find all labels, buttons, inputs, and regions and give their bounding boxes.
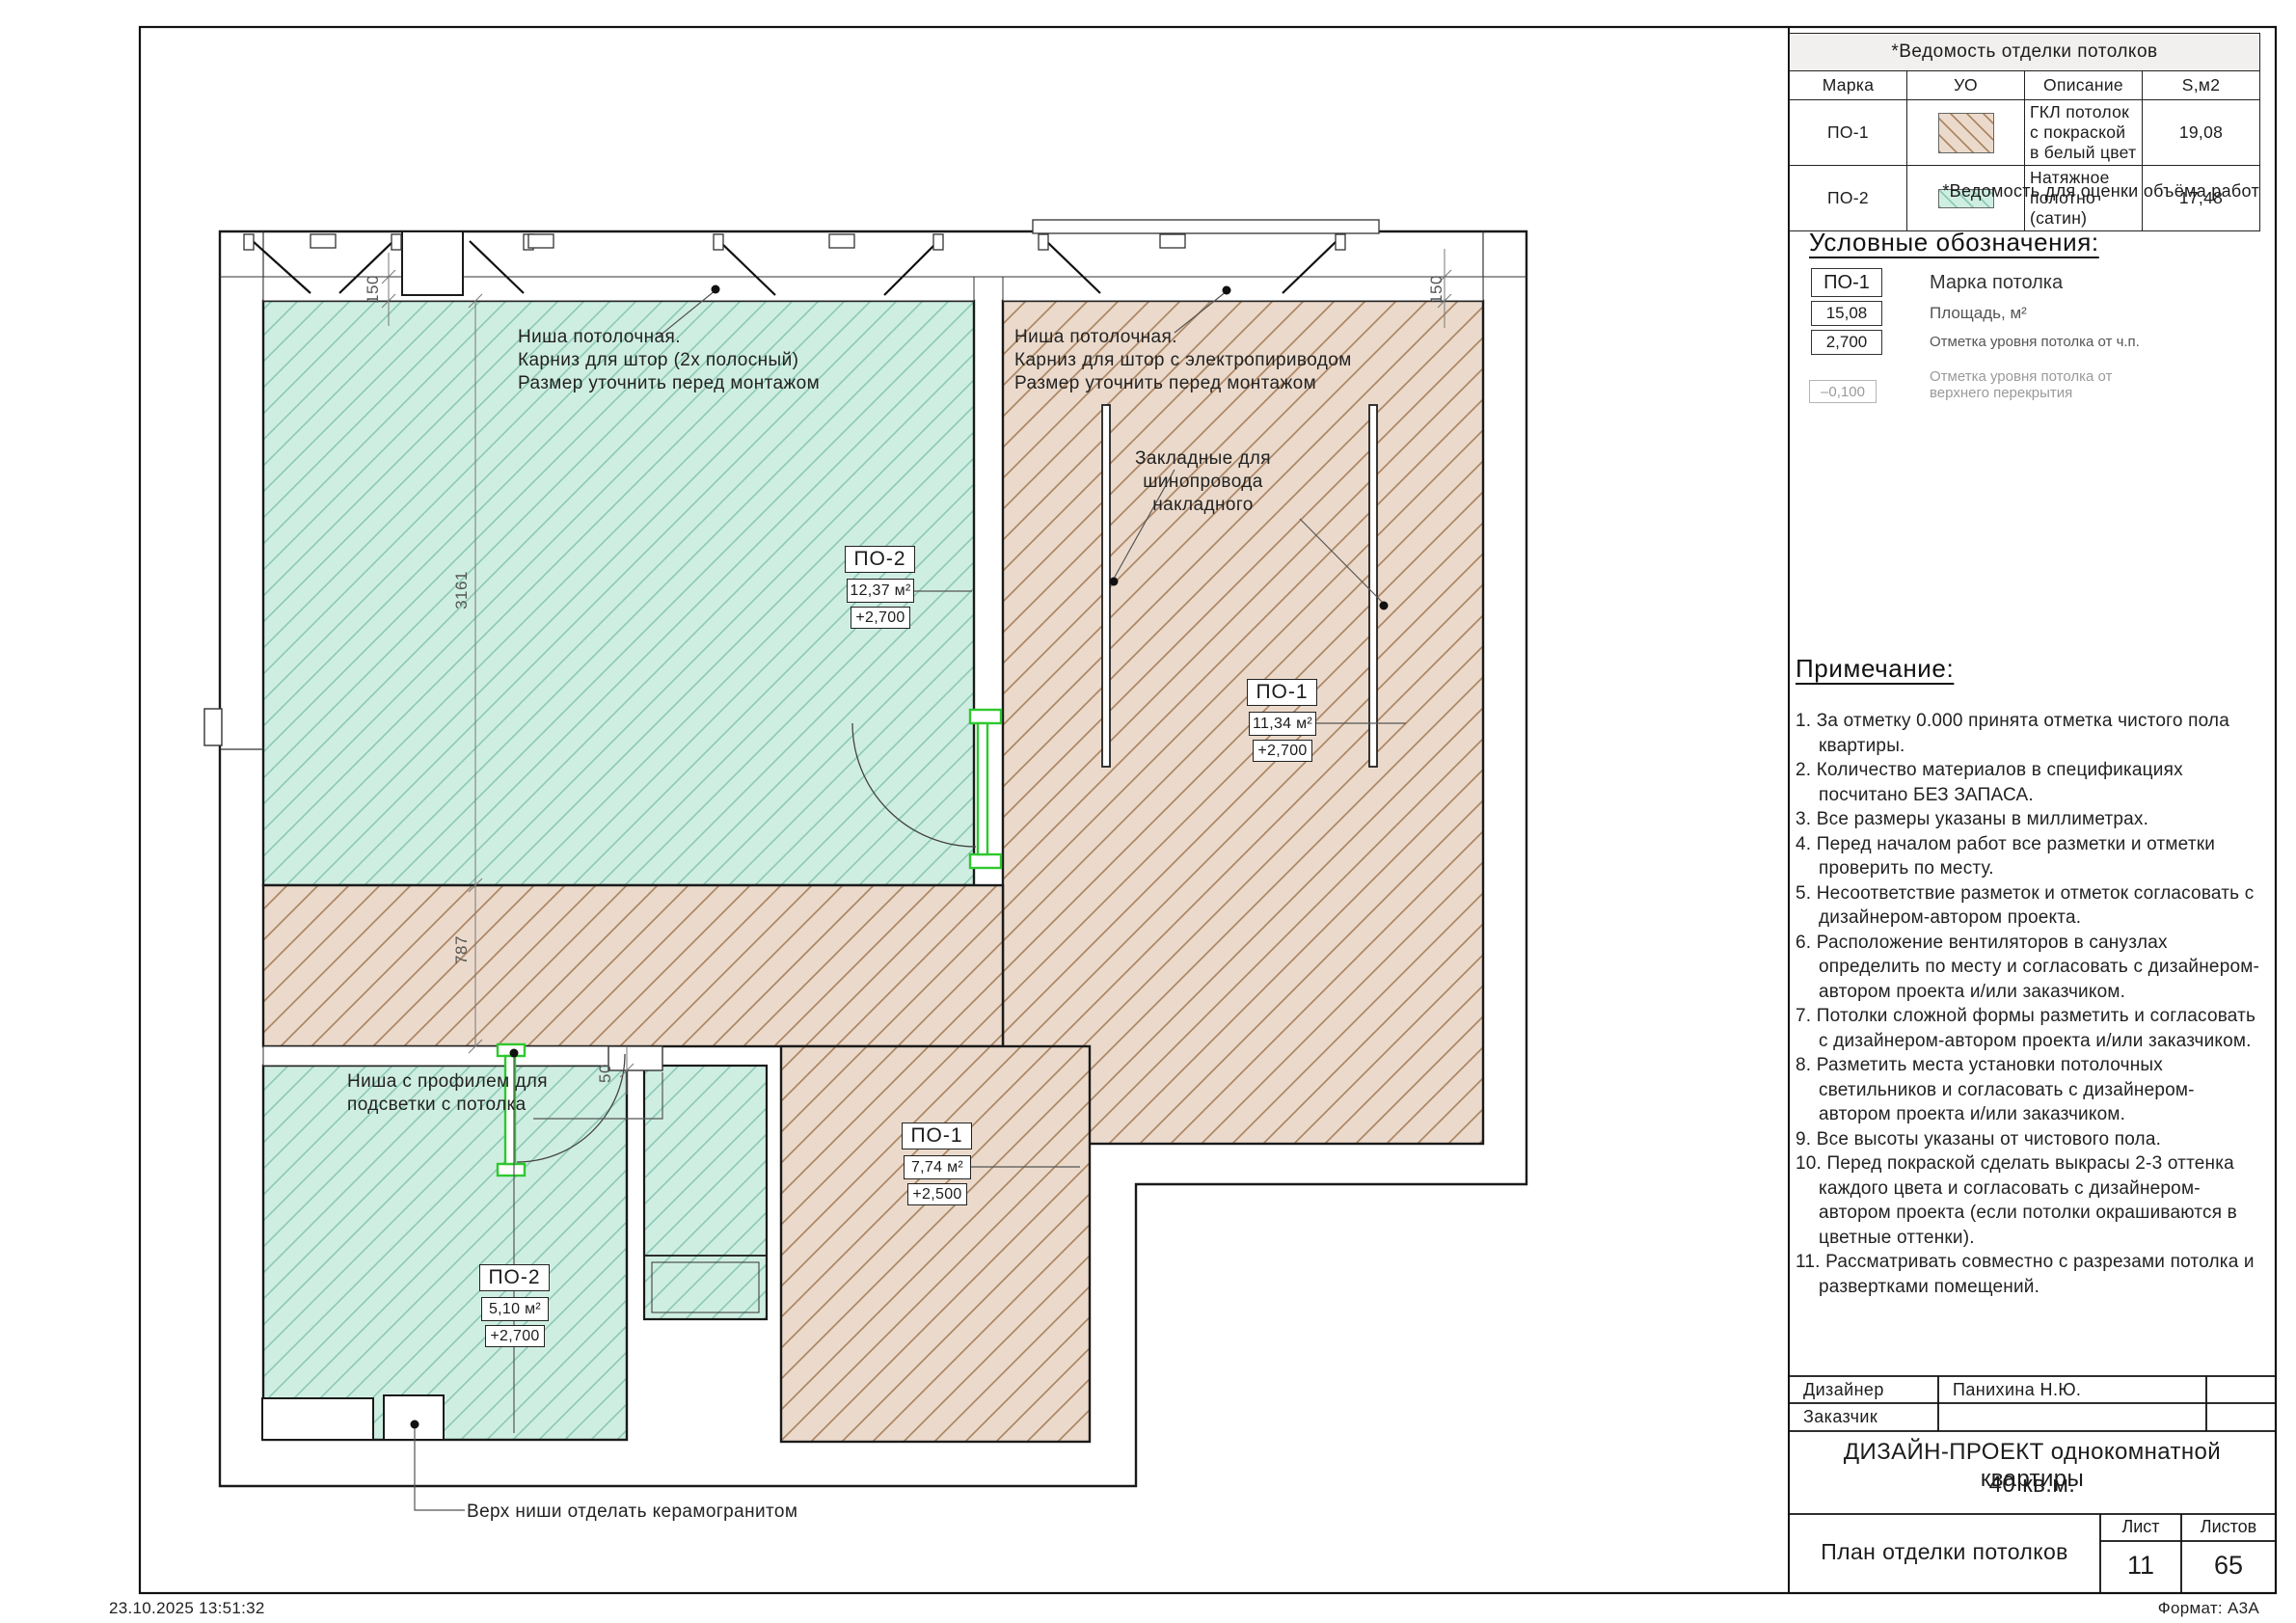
- label-level-po1-main: +2,700: [1253, 740, 1312, 762]
- label-area-po2-small: 5,10 м²: [481, 1297, 549, 1321]
- finish-schedule-table: *Ведомость отделки потолков Марка УО Опи…: [1789, 33, 2260, 231]
- note-item: Количество материалов в спецификациях по…: [1796, 758, 2260, 807]
- col-header-mark: Марка: [1790, 71, 1907, 100]
- format-label: Формат: А3А: [1982, 1599, 2259, 1618]
- label-mark-po2-small: ПО-2: [479, 1264, 550, 1291]
- cell-mark: ПО-1: [1790, 100, 1907, 166]
- annotation-line: Размер уточнить перед монтажом: [1014, 372, 1352, 395]
- legend-label-line: верхнего перекрытия: [1930, 385, 2112, 401]
- note-item: Перед покраской сделать выкрасы 2-3 отте…: [1796, 1151, 2260, 1250]
- cell-area: 19,08: [2143, 100, 2260, 166]
- annotation-line: Закладные для: [1109, 447, 1297, 471]
- dim-light-niche: 50: [596, 1044, 615, 1102]
- annotation-line: Ниша потолочная.: [518, 326, 820, 349]
- note-item: Рассматривать совместно с разрезами пото…: [1796, 1250, 2260, 1299]
- note-item: Разметить места установки потолочных све…: [1796, 1053, 2260, 1127]
- legend-symbol-mark: ПО-1: [1811, 268, 1882, 297]
- label-mark-po1-corridor: ПО-1: [902, 1123, 972, 1150]
- label-area-po2-main: 12,37 м²: [847, 579, 914, 603]
- annotation-ceramic: Верх ниши отделать керамогранитом: [467, 1501, 797, 1524]
- dim-niche-top: 150: [364, 260, 383, 318]
- label-mark-po1-main: ПО-1: [1247, 679, 1317, 706]
- ceiling-niche-right: [1003, 277, 1483, 301]
- label-level-po1-corridor: +2,500: [907, 1183, 967, 1205]
- label-level-po2-small: +2,700: [485, 1325, 545, 1347]
- cell-desc: ГКЛ потолок с покраской в белый цвет: [2025, 100, 2143, 166]
- table-footnote: *Ведомость для оценки объёма работ: [1789, 181, 2259, 202]
- table-title: *Ведомость отделки потолков: [1790, 34, 2260, 71]
- timestamp: 23.10.2025 13:51:32: [109, 1599, 265, 1618]
- annotation-line: Размер уточнить перед монтажом: [518, 372, 820, 395]
- dim-room-height: 3161: [452, 561, 472, 619]
- swatch-gkl-brown: [1938, 113, 1994, 153]
- client-label: Заказчик: [1803, 1407, 1877, 1427]
- legend-label-slab: Отметка уровня потолка от верхнего перек…: [1930, 368, 2112, 401]
- annotation-line: Ниша с профилем для: [347, 1070, 548, 1094]
- sheet-label: Лист: [2100, 1517, 2181, 1537]
- left-wall-pier: [204, 709, 222, 745]
- annotation-line: Карниз для штор с электропириводом: [1014, 349, 1352, 372]
- designer-value: Панихина Н.Ю.: [1953, 1380, 2081, 1400]
- light-niche-strip: [263, 1046, 627, 1066]
- annotation-line: шинопровода: [1109, 471, 1297, 494]
- legend-label-level: Отметка уровня потолка от ч.п.: [1930, 334, 2140, 350]
- note-item: За отметку 0.000 принята отметка чистого…: [1796, 709, 2260, 758]
- corridor-gkl-band: [263, 885, 1003, 1046]
- col-header-desc: Описание: [2025, 71, 2143, 100]
- sheet-number: 11: [2100, 1551, 2181, 1581]
- busbar-embed-right: [1369, 405, 1377, 767]
- col-header-area: S,м2: [2143, 71, 2260, 100]
- legend-title: Условные обозначения:: [1809, 228, 2099, 257]
- note-item: Несоответствие разметок и отметок соглас…: [1796, 881, 2260, 931]
- dim-corridor: 787: [452, 921, 472, 979]
- note-item: Все размеры указаны в миллиметрах.: [1796, 807, 2260, 832]
- note-item: Потолки сложной формы разметить и соглас…: [1796, 1004, 2260, 1053]
- table-row: ПО-1 ГКЛ потолок с покраской в белый цве…: [1790, 100, 2260, 166]
- col-header-symbol: УО: [1907, 71, 2025, 100]
- annotation-niche-left: Ниша потолочная. Карниз для штор (2х пол…: [518, 326, 820, 395]
- corridor-gkl-lower: [781, 1046, 1090, 1442]
- annotation-line: подсветки с потолка: [347, 1094, 548, 1117]
- notes-list: За отметку 0.000 принята отметка чистого…: [1796, 709, 2260, 1299]
- note-item: Перед началом работ все разметки и отмет…: [1796, 832, 2260, 881]
- annotation-busbar: Закладные для шинопровода накладного: [1109, 447, 1297, 517]
- label-area-po1-corridor: 7,74 м²: [904, 1155, 971, 1179]
- room-gkl-ceiling-main: [1003, 301, 1483, 1144]
- label-mark-po2-main: ПО-2: [845, 546, 915, 573]
- annotation-niche-right: Ниша потолочная. Карниз для штор с элект…: [1014, 326, 1352, 395]
- dim-niche-right: 150: [1427, 260, 1446, 318]
- sheets-total: 65: [2181, 1551, 2276, 1581]
- annotation-line: Ниша потолочная.: [1014, 326, 1352, 349]
- annotation-line: Карниз для штор (2х полосный): [518, 349, 820, 372]
- room-stretch-ceiling-small: [263, 1066, 627, 1440]
- label-level-po2-main: +2,700: [851, 607, 910, 629]
- drawing-title: План отделки потолков: [1789, 1539, 2100, 1565]
- annotation-line: накладного: [1109, 494, 1297, 517]
- sheets-label: Листов: [2181, 1517, 2276, 1537]
- bottom-niche-box-1: [262, 1398, 373, 1440]
- project-title-line2: 40 кв.м.: [1789, 1472, 2276, 1499]
- note-item: Все высоты указаны от чистового пола.: [1796, 1127, 2260, 1152]
- drawing-sheet: Ниша потолочная. Карниз для штор (2х пол…: [0, 0, 2296, 1623]
- legend-symbol-level: 2,700: [1811, 330, 1882, 355]
- designer-label: Дизайнер: [1803, 1380, 1884, 1400]
- legend-label-line: Отметка уровня потолка от: [1930, 368, 2112, 385]
- legend-symbol-area: 15,08: [1811, 301, 1882, 326]
- notes-title: Примечание:: [1796, 654, 1954, 684]
- cell-swatch: [1907, 100, 2025, 166]
- annotation-light-niche: Ниша с профилем для подсветки с потолка: [347, 1070, 548, 1117]
- bottom-niche-box-2: [384, 1395, 444, 1440]
- light-niche-box: [608, 1046, 662, 1070]
- legend-symbol-slab: –0,100: [1809, 380, 1877, 403]
- label-area-po1-main: 11,34 м²: [1249, 712, 1316, 736]
- legend-label-mark: Марка потолка: [1930, 272, 2063, 294]
- legend-label-area: Площадь, м²: [1930, 304, 2027, 323]
- note-item: Расположение вентиляторов в санузлах опр…: [1796, 931, 2260, 1005]
